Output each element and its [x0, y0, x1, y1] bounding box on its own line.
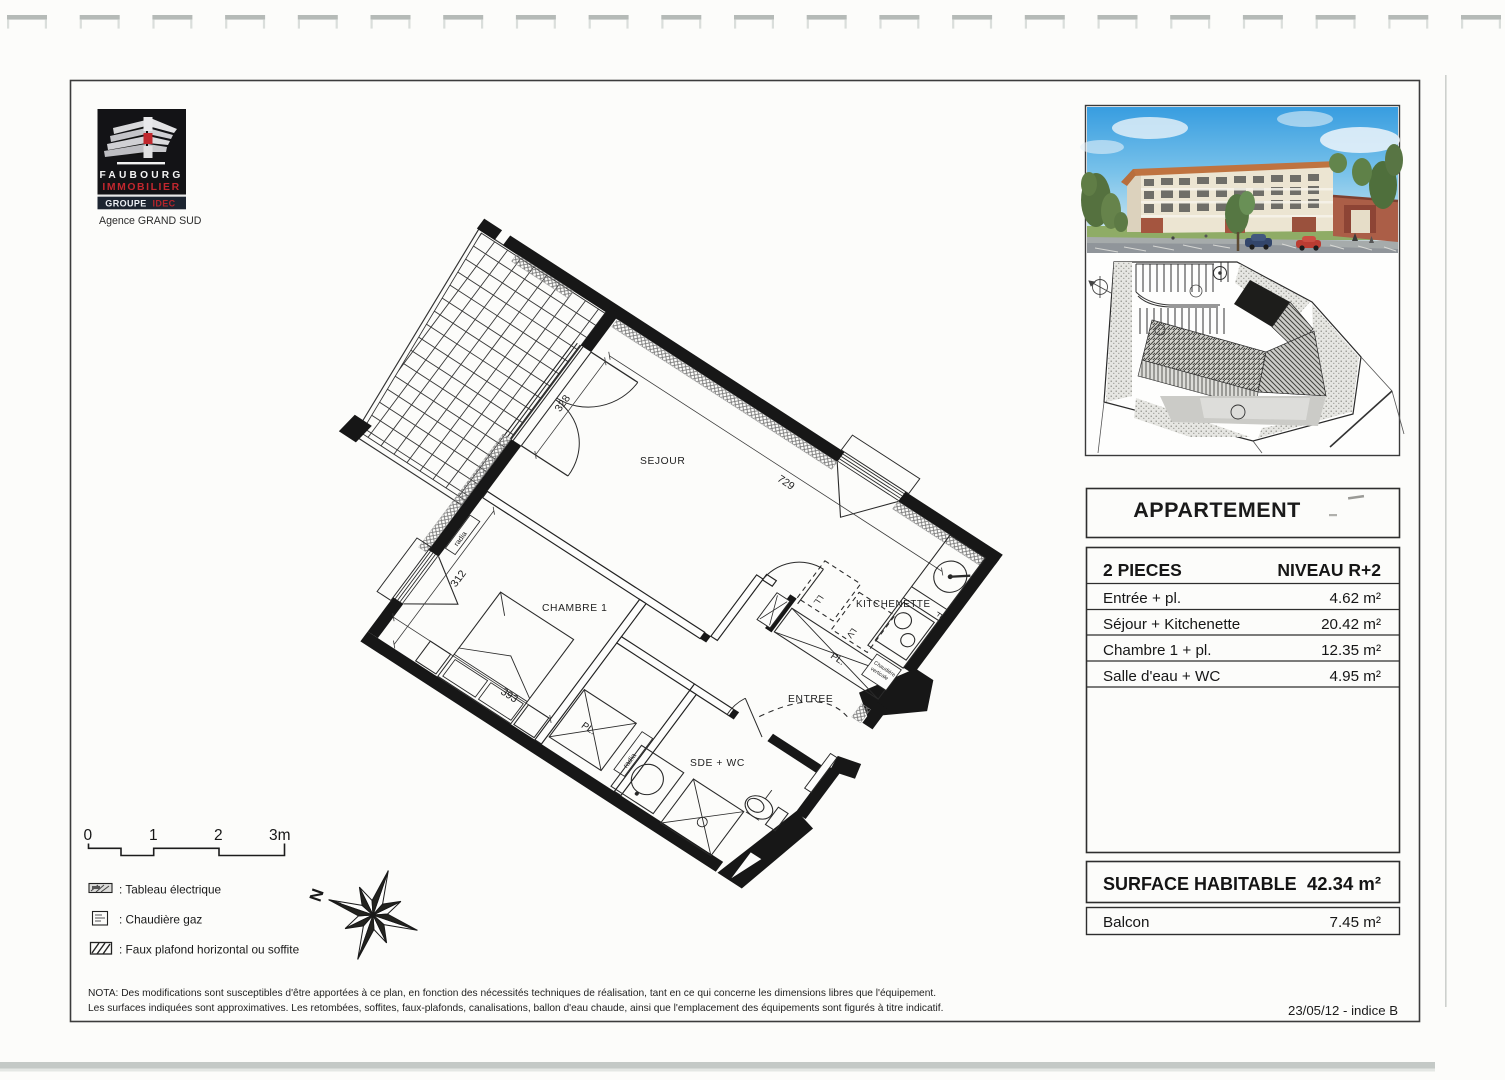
- svg-text:ENTREE: ENTREE: [788, 694, 833, 705]
- svg-text:SEJOUR: SEJOUR: [640, 456, 685, 467]
- svg-text:IMMOBILIER: IMMOBILIER: [102, 182, 180, 193]
- svg-text:: Faux plafond horizontal ou s: : Faux plafond horizontal ou soffite: [119, 943, 300, 957]
- svg-text:0: 0: [84, 827, 93, 844]
- svg-text:7.45 m²: 7.45 m²: [1330, 914, 1382, 931]
- svg-text:Les surfaces indiquées sont ap: Les surfaces indiquées sont approximativ…: [88, 1003, 943, 1014]
- svg-text:FAUBOURG: FAUBOURG: [100, 170, 184, 181]
- svg-text:CHAMBRE 1: CHAMBRE 1: [542, 603, 607, 614]
- svg-text:IDEC: IDEC: [152, 199, 175, 209]
- svg-text:SDE + WC: SDE + WC: [690, 758, 745, 769]
- svg-text:: Chaudière gaz: : Chaudière gaz: [119, 913, 202, 927]
- svg-text:Chambre 1 + pl.: Chambre 1 + pl.: [1103, 642, 1211, 659]
- svg-text:Agence GRAND SUD: Agence GRAND SUD: [99, 215, 202, 227]
- svg-text:GROUPE: GROUPE: [105, 199, 146, 209]
- svg-text:SURFACE HABITABLE: SURFACE HABITABLE: [1103, 874, 1297, 894]
- svg-text:NIVEAU R+2: NIVEAU R+2: [1277, 560, 1381, 580]
- svg-text:3m: 3m: [269, 827, 291, 844]
- svg-text:4.62 m²: 4.62 m²: [1330, 590, 1382, 607]
- svg-text:Séjour + Kitchenette: Séjour + Kitchenette: [1103, 616, 1240, 633]
- svg-text:Salle d'eau + WC: Salle d'eau + WC: [1103, 668, 1220, 685]
- svg-text:: Tableau électrique: : Tableau électrique: [119, 883, 222, 897]
- svg-text:12.35 m²: 12.35 m²: [1321, 642, 1381, 659]
- svg-text:Balcon: Balcon: [1103, 914, 1149, 931]
- svg-text:4.95 m²: 4.95 m²: [1330, 668, 1382, 685]
- svg-text:2: 2: [214, 827, 223, 844]
- svg-text:Entrée + pl.: Entrée + pl.: [1103, 590, 1181, 607]
- svg-text:APPARTEMENT: APPARTEMENT: [1133, 498, 1301, 522]
- svg-text:1: 1: [149, 827, 158, 844]
- svg-text:23/05/12 - indice B: 23/05/12 - indice B: [1288, 1003, 1398, 1018]
- svg-text:2 PIECES: 2 PIECES: [1103, 560, 1182, 580]
- svg-text:KITCHENETTE: KITCHENETTE: [856, 599, 931, 610]
- svg-text:NOTA: Des modifications sont s: NOTA: Des modifications sont susceptible…: [88, 988, 936, 999]
- svg-text:42.34 m²: 42.34 m²: [1307, 873, 1381, 894]
- svg-text:20.42 m²: 20.42 m²: [1321, 616, 1381, 633]
